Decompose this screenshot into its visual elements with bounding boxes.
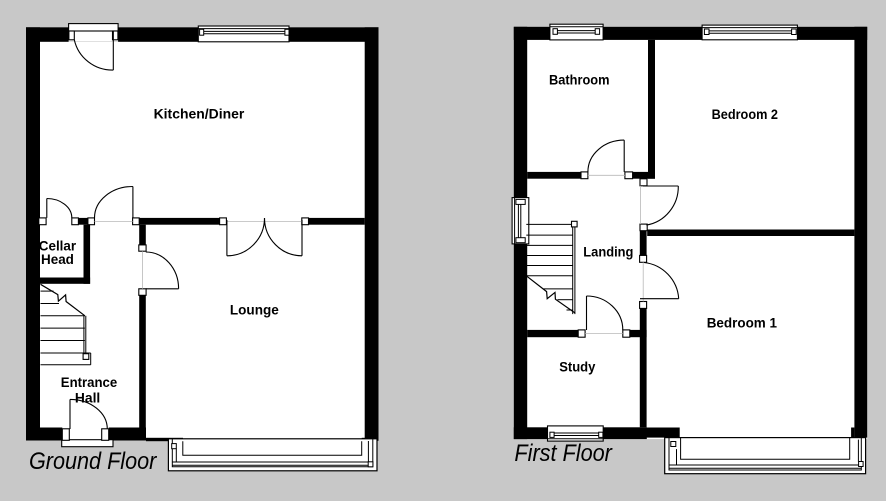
svg-text:Landing: Landing	[583, 243, 633, 259]
svg-text:Study: Study	[559, 359, 595, 375]
svg-text:Lounge: Lounge	[230, 302, 279, 318]
svg-text:Bedroom 1: Bedroom 1	[707, 315, 778, 331]
svg-text:Ground Floor: Ground Floor	[29, 448, 157, 475]
svg-text:First Floor: First Floor	[514, 440, 612, 467]
svg-text:Bathroom: Bathroom	[549, 71, 610, 87]
svg-text:Bedroom 2: Bedroom 2	[712, 106, 779, 122]
svg-text:Entrance: Entrance	[61, 374, 118, 390]
svg-text:Hall: Hall	[75, 389, 100, 405]
svg-text:Head: Head	[41, 251, 74, 267]
svg-text:Kitchen/Diner: Kitchen/Diner	[154, 106, 245, 122]
